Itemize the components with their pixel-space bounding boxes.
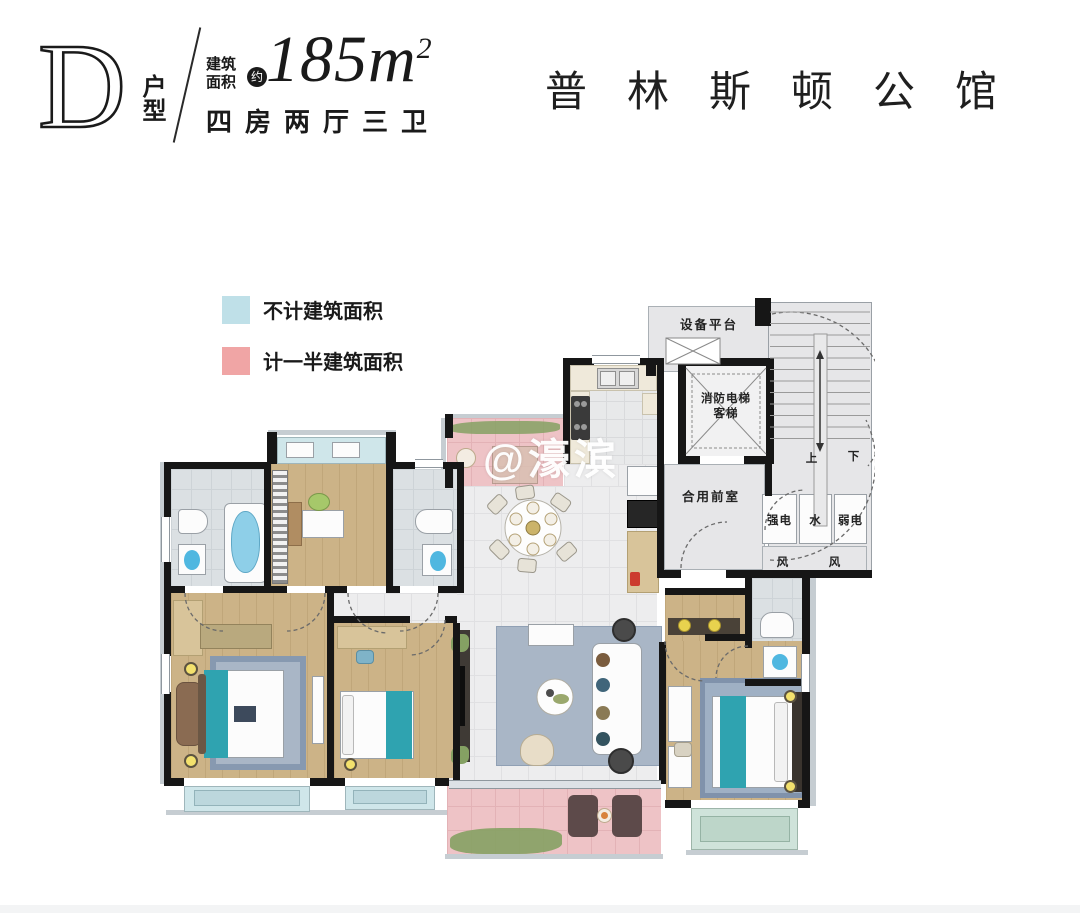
balcony-chair1 xyxy=(568,795,598,837)
wall xyxy=(678,456,700,464)
bedroomR-chair-icon xyxy=(674,742,692,757)
passenger-elevator-label: 客梯 xyxy=(684,407,768,422)
entry-flower1 xyxy=(678,619,691,632)
closet-bay-panel1 xyxy=(286,442,314,458)
floorplan-page: D 户型 建筑 面积 约 185m2 四房两厅三卫 普林斯顿公馆 不计建筑面积 … xyxy=(0,0,1080,913)
master-bed-teal xyxy=(204,670,228,758)
stair-down-label: 下 xyxy=(842,448,866,464)
balcony-bottom-plants xyxy=(450,828,562,854)
wall xyxy=(164,778,184,786)
wall xyxy=(744,456,774,464)
wine-cooler-icon xyxy=(627,500,659,528)
wall xyxy=(646,362,656,376)
watermark: @濠滨 xyxy=(483,426,620,487)
window xyxy=(415,459,443,468)
area-exponent: 2 xyxy=(417,32,433,65)
wall xyxy=(164,469,171,517)
bay-bedR-seat xyxy=(700,816,790,842)
sofa-pillow3 xyxy=(596,706,610,720)
wall xyxy=(164,586,185,593)
wall xyxy=(435,778,449,786)
bay-master-seat xyxy=(194,790,300,806)
unit-letter: D xyxy=(38,24,126,149)
wall xyxy=(445,414,453,438)
area-unit: m xyxy=(368,23,417,96)
wall xyxy=(705,634,747,641)
wall xyxy=(267,432,277,464)
wall xyxy=(802,692,810,804)
unit-type-label: 户型 xyxy=(140,74,166,122)
wall xyxy=(657,570,681,578)
wall xyxy=(388,586,400,593)
closet-shelf-icon xyxy=(288,502,302,546)
shaft-water-label: 水 xyxy=(799,512,832,528)
sill-bedr-bay xyxy=(686,850,808,855)
wall xyxy=(453,623,460,784)
wall xyxy=(325,586,347,593)
washbasin-right-bowl xyxy=(772,654,788,670)
master-lamp-top xyxy=(184,662,198,676)
approx-badge: 约 xyxy=(247,67,267,87)
bedroomR-bed-pillows xyxy=(774,702,788,782)
window xyxy=(801,654,810,692)
master-wardrobe-icon xyxy=(173,600,203,656)
wall xyxy=(310,778,345,786)
balcony-table-dot xyxy=(601,812,608,819)
window xyxy=(161,654,170,694)
bedroom2-desk-icon xyxy=(337,626,407,649)
stove-burner1 xyxy=(574,401,580,407)
wall xyxy=(678,358,774,366)
wall xyxy=(802,574,810,654)
vent-right-label: 风 xyxy=(820,554,850,570)
wall xyxy=(223,586,287,593)
wardrobe-strip-icon xyxy=(272,470,288,584)
stove-burner2 xyxy=(581,401,587,407)
shared-lobby-label: 合用前室 xyxy=(659,486,763,505)
wall xyxy=(393,462,415,469)
bedroom2-chair-icon xyxy=(356,650,374,664)
bottom-window-edge xyxy=(0,905,1080,913)
toilet-left-icon xyxy=(178,509,208,534)
elevator-label: 消防电梯 客梯 xyxy=(684,392,768,422)
shaft-strong-power-label: 强电 xyxy=(762,512,797,528)
wall xyxy=(386,462,393,593)
pantry-item-red xyxy=(630,572,640,586)
wall xyxy=(563,358,594,365)
sill-closet-bay xyxy=(268,430,396,435)
equipment-platform-label: 设备平台 xyxy=(648,314,770,333)
wall xyxy=(665,588,750,595)
wall xyxy=(657,358,664,570)
pantry-item-yellow xyxy=(643,560,655,568)
wall xyxy=(445,616,457,623)
wall xyxy=(798,800,810,808)
wall xyxy=(327,593,334,784)
toilet-right-icon xyxy=(760,612,794,638)
sill-balcony-bottom xyxy=(445,854,663,859)
entry-flower2 xyxy=(708,619,721,632)
wall xyxy=(164,692,171,784)
toilet-mid-icon xyxy=(415,509,453,534)
sink-bowl1 xyxy=(600,371,616,386)
window xyxy=(161,517,170,562)
wall xyxy=(264,462,271,593)
stair-up-label: 上 xyxy=(800,450,824,466)
wall xyxy=(386,432,396,464)
master-lamp-bottom xyxy=(184,754,198,768)
header-slash-divider xyxy=(173,27,201,142)
bedroom2-lamp xyxy=(344,758,357,771)
project-name: 普林斯顿公馆 xyxy=(545,58,1037,119)
bedroom2-bed-teal xyxy=(386,691,412,759)
area-prefix-line2: 面积 xyxy=(206,74,236,92)
chair-closet-icon xyxy=(308,493,330,511)
area-number: 185 xyxy=(266,23,368,96)
wall xyxy=(445,466,453,488)
floorplan: 设备平台 消防电梯 客梯 合用前室 强电 水 弱电 风 风 上 下 xyxy=(160,298,875,868)
living-bench-icon xyxy=(528,624,574,646)
master-cabinet-icon xyxy=(200,624,272,649)
bedroomR-vanity-icon xyxy=(668,686,692,742)
wall xyxy=(164,462,268,469)
shaft-weak-power-label: 弱电 xyxy=(834,512,867,528)
bedroomR-lamp-top xyxy=(784,690,797,703)
window xyxy=(592,355,640,364)
fridge-icon xyxy=(627,466,659,496)
sink-bowl2 xyxy=(619,371,635,386)
side-table-bottom-icon xyxy=(608,748,634,774)
wall xyxy=(745,679,806,686)
side-table-top-icon xyxy=(612,618,636,642)
bedroomR-lamp-bottom xyxy=(784,780,797,793)
washbasin-mid-bowl xyxy=(430,551,446,571)
sofa-pillow2 xyxy=(596,678,610,692)
area-prefix-line1: 建筑 xyxy=(206,56,236,74)
wall xyxy=(164,593,171,656)
sofa-pillow1 xyxy=(596,653,610,667)
wall xyxy=(457,462,464,586)
armchair-icon xyxy=(520,734,554,766)
fire-elevator-label: 消防电梯 xyxy=(684,392,768,407)
closet-bay-panel2 xyxy=(332,442,360,458)
bedroomR-bed-teal xyxy=(720,696,746,788)
bay-bed2-seat xyxy=(353,790,427,804)
area-prefix: 建筑 面积 xyxy=(206,56,236,92)
area-value: 185m2 xyxy=(266,22,433,98)
sofa-pillow4 xyxy=(596,732,610,746)
desk-closet-icon xyxy=(302,510,344,538)
bathtub-icon xyxy=(231,511,260,573)
master-bed-throw xyxy=(234,706,256,722)
wall xyxy=(659,642,666,784)
lobby-floor xyxy=(664,464,765,570)
wall xyxy=(665,800,691,808)
wall xyxy=(333,616,410,623)
bedroom2-bed-pillows xyxy=(342,695,354,755)
slider xyxy=(449,780,661,789)
rooms-summary: 四房两厅三卫 xyxy=(206,102,440,139)
master-tv-panel xyxy=(312,676,324,744)
wall xyxy=(745,574,752,648)
master-bed-pillows xyxy=(198,674,206,754)
balcony-chair2 xyxy=(612,795,642,837)
wall xyxy=(438,586,464,593)
vent-left-label: 风 xyxy=(768,554,798,570)
washbasin-left-bowl xyxy=(184,550,200,570)
sill-right xyxy=(810,574,816,806)
